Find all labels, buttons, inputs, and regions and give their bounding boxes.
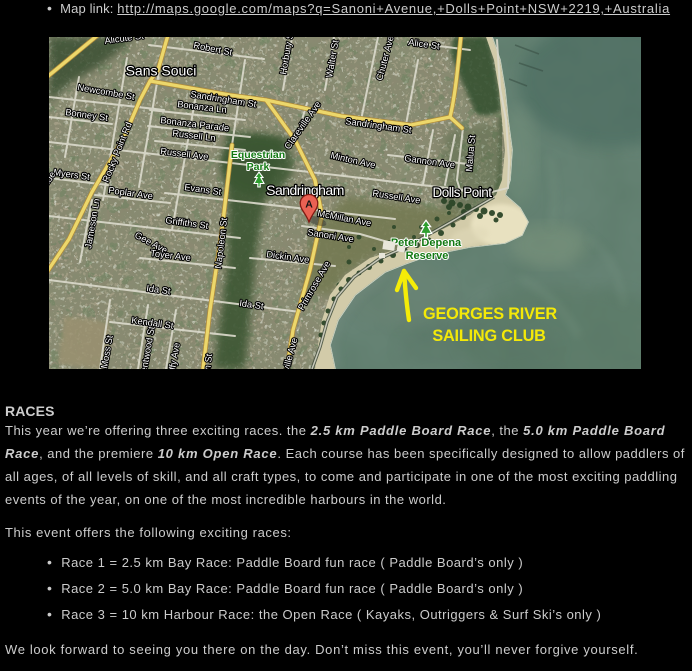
svg-text:Equestrian: Equestrian	[231, 149, 285, 161]
svg-text:GEORGES RIVER: GEORGES RIVER	[423, 305, 557, 323]
svg-text:Sans Souci: Sans Souci	[126, 63, 197, 79]
svg-text:Reserve: Reserve	[406, 250, 449, 262]
svg-text:SAILING CLUB: SAILING CLUB	[432, 327, 546, 345]
svg-text:A: A	[305, 199, 313, 211]
svg-text:Park: Park	[247, 161, 270, 173]
svg-text:Dolls Point: Dolls Point	[432, 185, 492, 200]
